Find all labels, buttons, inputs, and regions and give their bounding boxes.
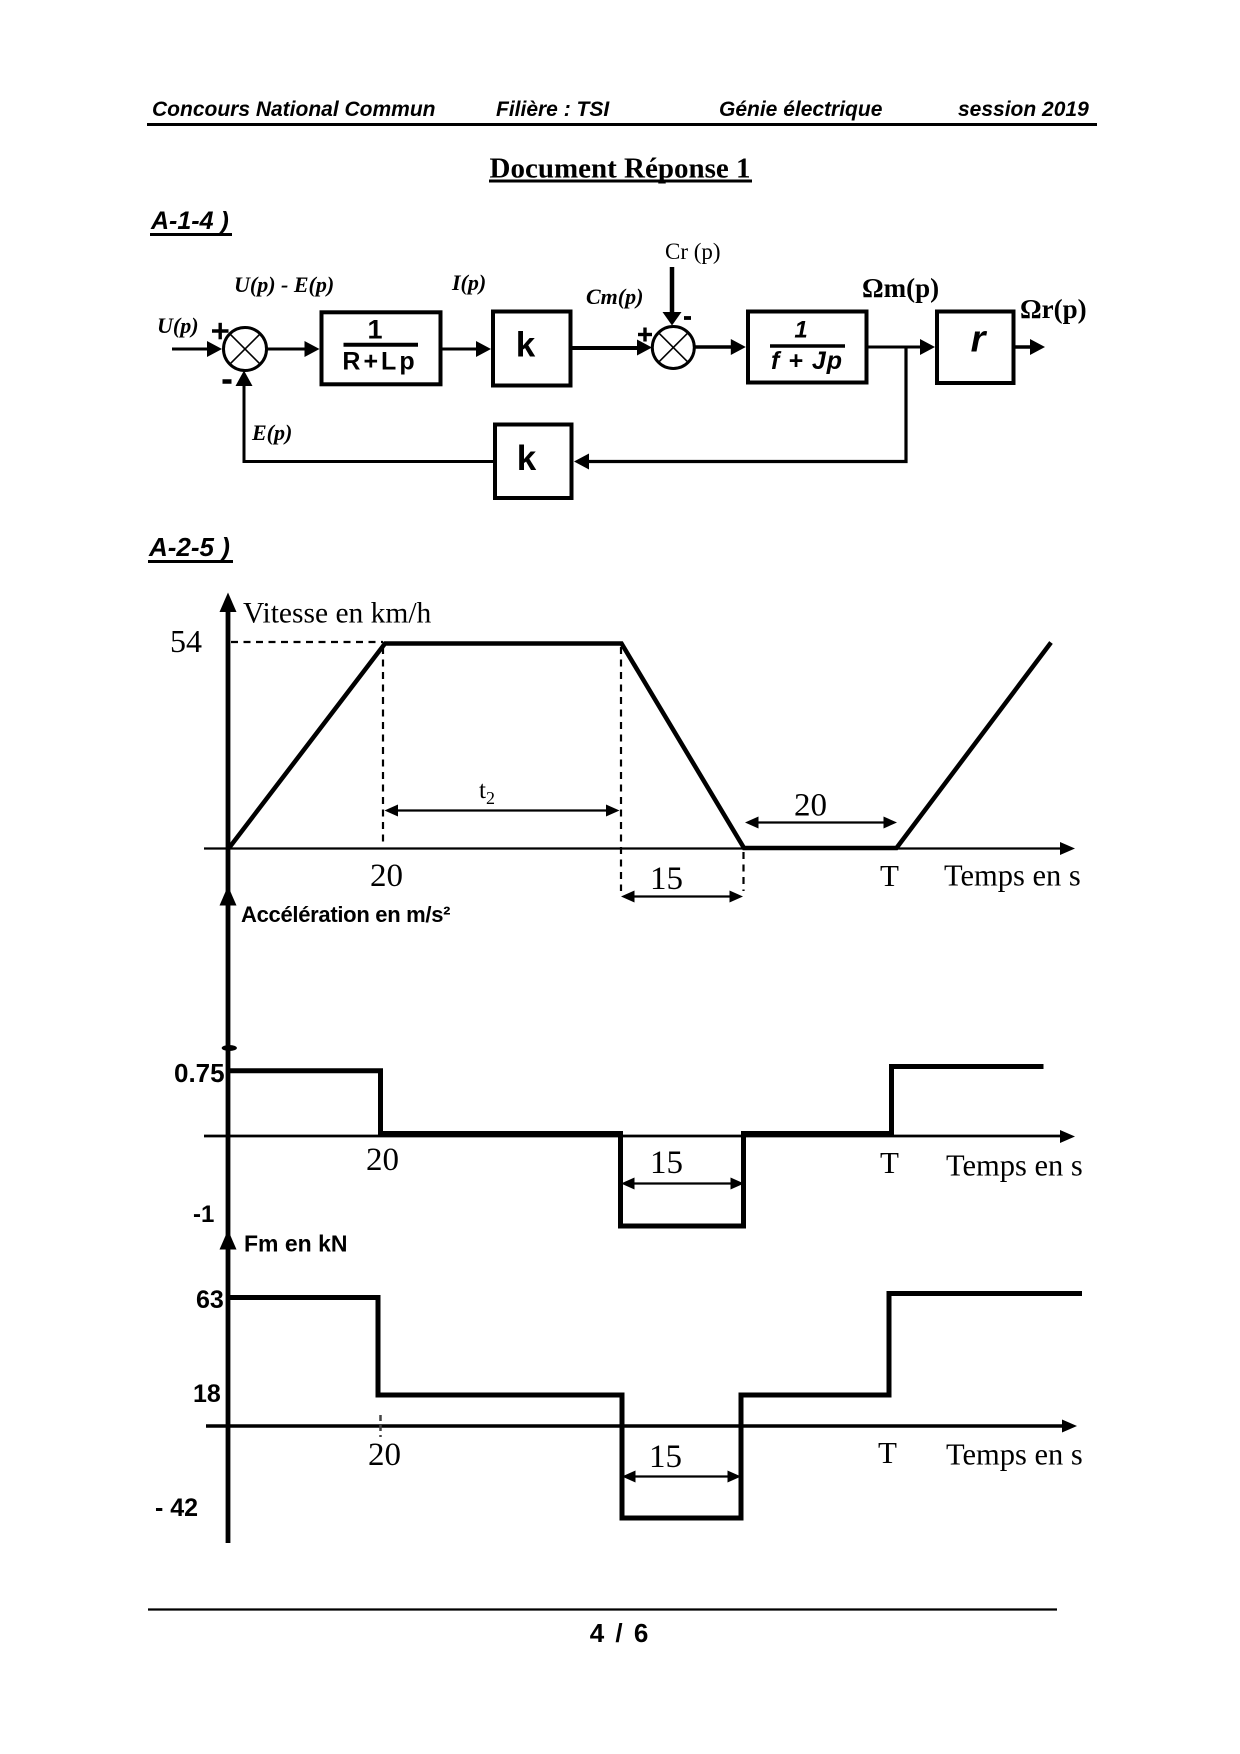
svg-text:20: 20 [370, 858, 403, 894]
svg-text:t2: t2 [479, 777, 495, 808]
svg-text:Temps en s: Temps en s [946, 1149, 1083, 1183]
svg-text:15: 15 [650, 1145, 683, 1181]
svg-text:Génie électrique: Génie électrique [719, 98, 883, 121]
svg-text:20: 20 [366, 1142, 399, 1178]
svg-text:E(p): E(p) [251, 420, 292, 445]
svg-text:Concours National Commun: Concours National Commun [152, 98, 436, 121]
svg-text:20: 20 [368, 1437, 401, 1473]
svg-text:Temps en s: Temps en s [946, 1438, 1083, 1472]
svg-text:18: 18 [193, 1380, 221, 1408]
svg-text:20: 20 [794, 788, 827, 824]
svg-text:54: 54 [170, 623, 202, 659]
svg-text:15: 15 [649, 1439, 682, 1475]
svg-text:A-2-5 ): A-2-5 ) [148, 532, 230, 562]
svg-text:0.75: 0.75 [174, 1058, 225, 1088]
svg-text:- 42: - 42 [155, 1494, 198, 1522]
svg-text:I(p): I(p) [451, 270, 486, 295]
svg-text:T: T [880, 1145, 899, 1180]
svg-text:-1: -1 [193, 1201, 214, 1228]
svg-text:Ωr(p): Ωr(p) [1020, 294, 1087, 324]
svg-text:1: 1 [794, 317, 807, 344]
svg-text:r: r [971, 319, 988, 361]
svg-text:A-1-4 ): A-1-4 ) [150, 207, 229, 235]
svg-text:U(p) - E(p): U(p) - E(p) [234, 272, 334, 297]
svg-text:Filière : TSI: Filière : TSI [496, 98, 610, 121]
svg-text:T: T [878, 1435, 897, 1470]
svg-text:R+Lp: R+Lp [342, 348, 417, 376]
svg-text:Temps en s: Temps en s [944, 859, 1081, 893]
svg-text:Vitesse en km/h: Vitesse en km/h [243, 598, 432, 630]
svg-text:Ωm(p): Ωm(p) [862, 273, 939, 303]
svg-text:k: k [517, 439, 537, 478]
svg-text:k: k [516, 326, 536, 365]
svg-text:Cm(p): Cm(p) [586, 284, 643, 309]
svg-text:T: T [880, 858, 899, 893]
svg-text:Accélération en m/s²: Accélération en m/s² [241, 902, 450, 927]
svg-text:63: 63 [196, 1286, 224, 1314]
svg-text:f + Jp: f + Jp [771, 347, 843, 375]
svg-text:4 / 6: 4 / 6 [590, 1618, 651, 1648]
svg-text:U(p): U(p) [157, 313, 199, 338]
svg-text:15: 15 [650, 861, 683, 897]
svg-text:1: 1 [367, 315, 382, 345]
svg-text:Cr (p): Cr (p) [665, 239, 721, 264]
svg-text:session 2019: session 2019 [958, 98, 1089, 121]
svg-text:Fm en kN: Fm en kN [244, 1231, 348, 1257]
